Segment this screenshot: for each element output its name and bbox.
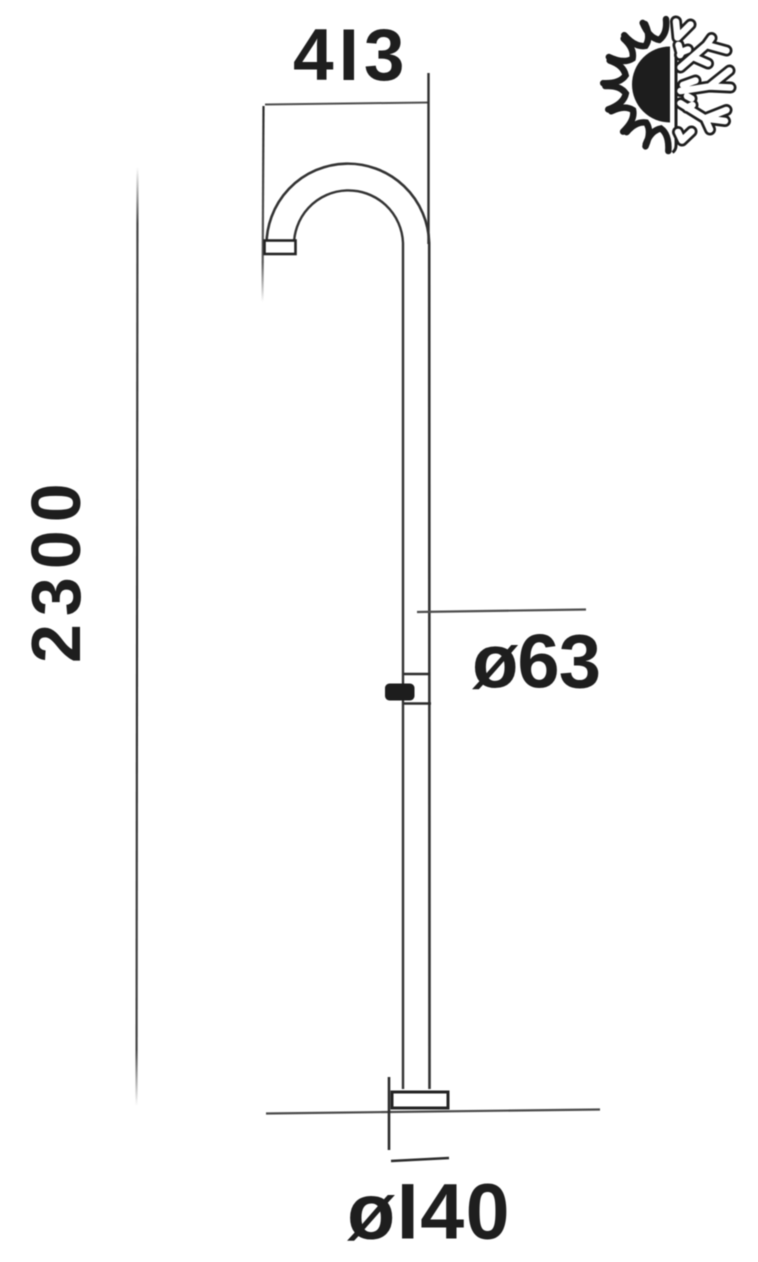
svg-text:4I3: 4I3 — [293, 15, 409, 96]
svg-text:2300: 2300 — [17, 475, 95, 663]
svg-text:ø63: ø63 — [472, 620, 600, 705]
svg-text:øI40: øI40 — [347, 1167, 511, 1256]
